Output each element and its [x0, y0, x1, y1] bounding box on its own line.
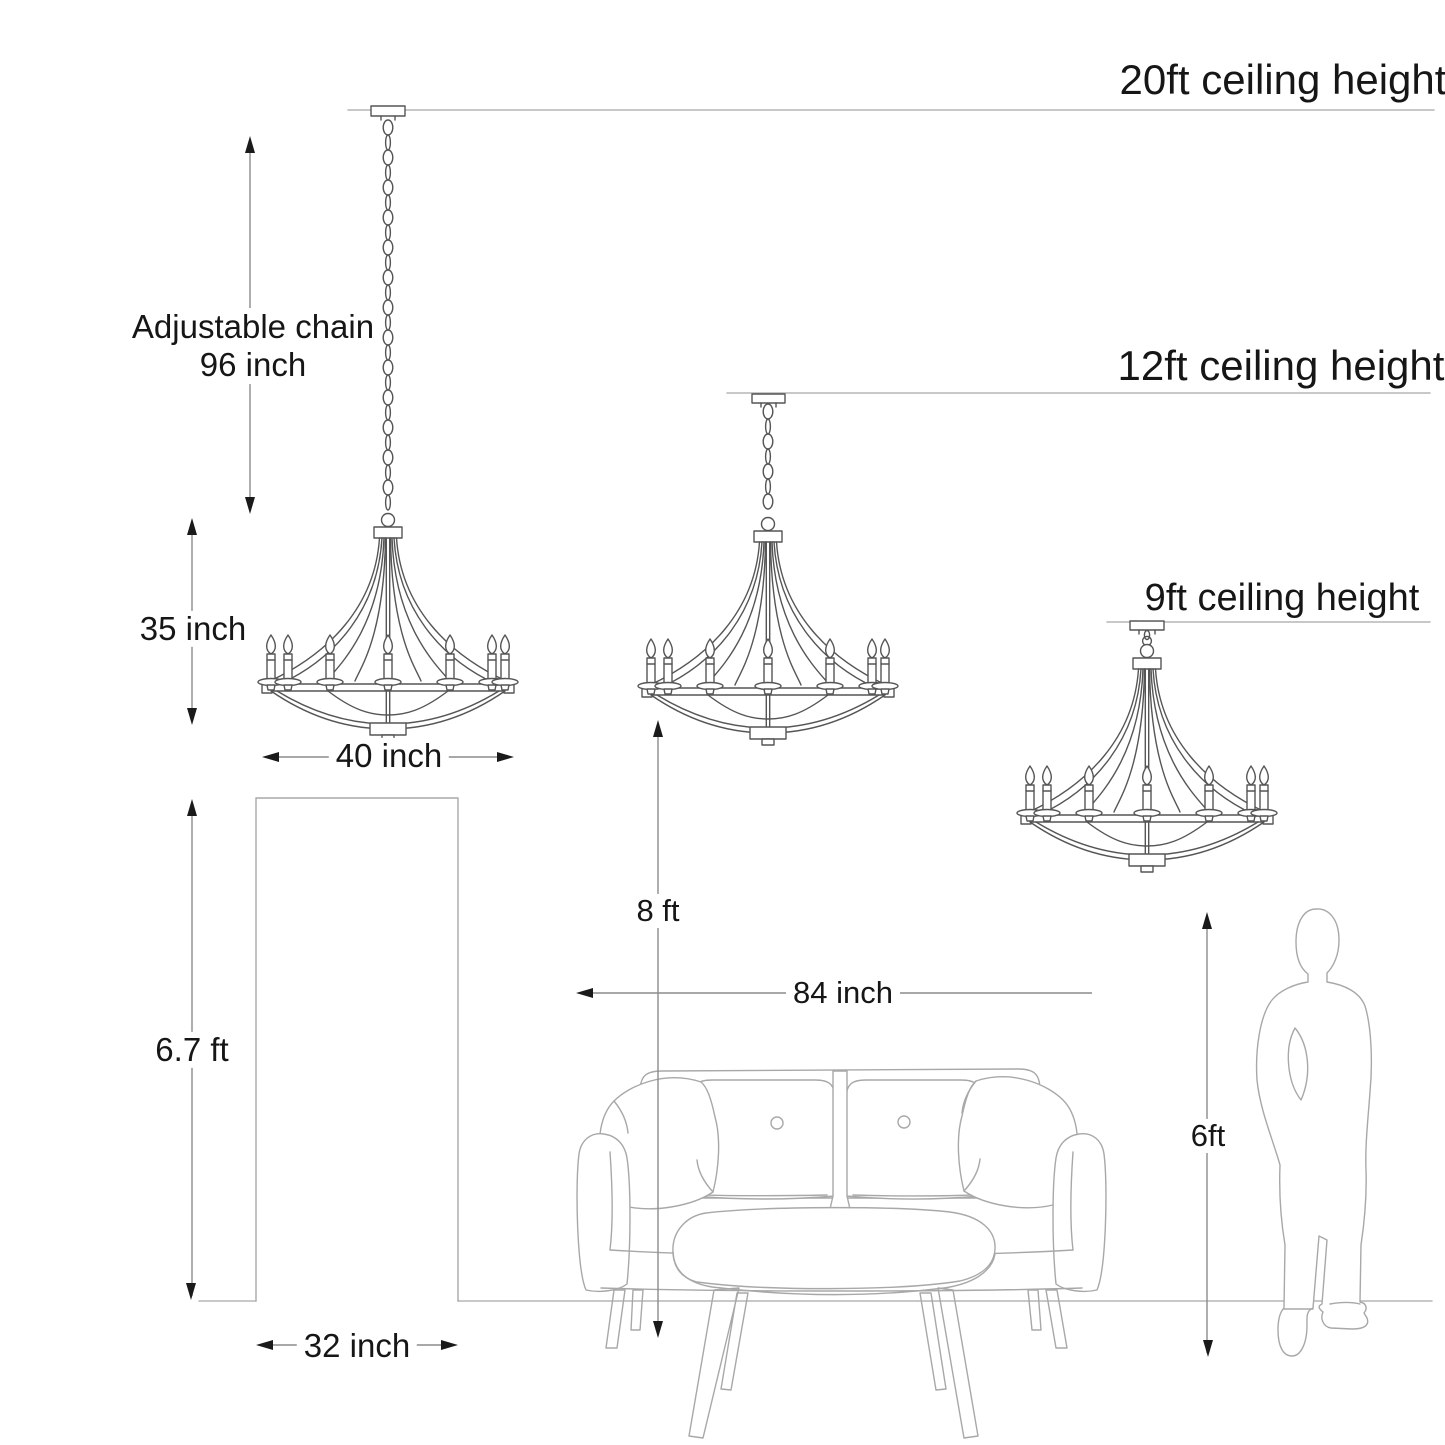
ceiling-canopy: [371, 106, 405, 116]
ceiling-canopy: [752, 394, 785, 403]
coffee-table-legs: [689, 1288, 978, 1438]
label-adjustable-chain: Adjustable chain 96 inch: [125, 308, 381, 384]
label-door-width: 32 inch: [297, 1328, 417, 1364]
diagram-drawing: [0, 0, 1445, 1445]
sofa-legs: [606, 1290, 1067, 1348]
label-person-height: 6ft: [1184, 1119, 1232, 1153]
chandelier-9ft: [1017, 621, 1277, 872]
hanging-chain: [383, 120, 393, 510]
sofa-armrest-right: [1053, 1134, 1106, 1292]
label-ceiling-9ft: 9ft ceiling height: [1138, 578, 1427, 620]
label-door-height: 6.7 ft: [148, 1032, 235, 1068]
chandelier-20ft: [258, 106, 518, 741]
ceiling-canopy: [1130, 621, 1164, 630]
label-adjustable-chain-line1: Adjustable chain: [132, 308, 374, 346]
person-silhouette: [1257, 909, 1372, 1356]
coffee-table: [673, 1208, 995, 1438]
sofa-armrest-left: [577, 1134, 630, 1292]
coffee-table-top: [673, 1208, 995, 1289]
chandelier-dimension-diagram: 20ft ceiling height 12ft ceiling height …: [0, 0, 1445, 1445]
label-sofa-width: 84 inch: [786, 976, 900, 1010]
hanging-chain: [763, 404, 773, 509]
label-ceiling-12ft: 12ft ceiling height: [1111, 343, 1445, 389]
label-fixture-height: 35 inch: [133, 611, 253, 647]
label-floor-clearance: 8 ft: [629, 894, 686, 928]
chandelier-12ft: [638, 394, 898, 745]
label-fixture-width: 40 inch: [329, 738, 449, 774]
door-outline: [256, 798, 458, 1301]
label-ceiling-20ft: 20ft ceiling height: [1113, 57, 1445, 103]
label-adjustable-chain-line2: 96 inch: [132, 346, 374, 384]
